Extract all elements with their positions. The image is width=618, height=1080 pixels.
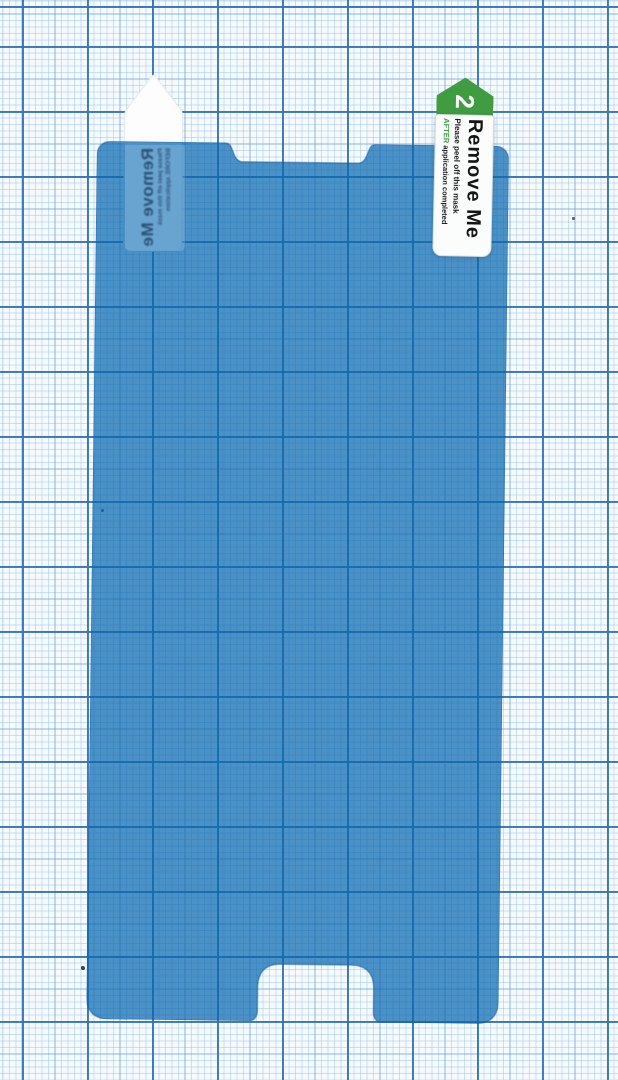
peel-tab-1-instruction: Please peel off this mask — [157, 148, 165, 250]
after-rest: application completed — [440, 143, 451, 224]
after-highlight: AFTER — [442, 118, 452, 143]
film-shape — [86, 141, 509, 1024]
peel-tab-1-instruction2: BEFORE application — [165, 148, 173, 250]
dust-speck — [81, 966, 85, 970]
peel-tab-1-mirrored-text: Remove Me Please peel off this mask BEFO… — [128, 148, 184, 250]
peel-tab-2-title: Remove Me — [461, 119, 485, 252]
peel-tab-2: 2 Remove Me Please peel off this mask AF… — [432, 77, 495, 257]
dust-speck — [572, 217, 575, 220]
peel-tab-2-label: Remove Me Please peel off this mask AFTE… — [432, 114, 494, 257]
step-2-arrow-icon: 2 — [436, 77, 494, 118]
peel-tab-1-title: Remove Me — [139, 148, 157, 250]
screen-protector-film — [86, 141, 509, 1024]
